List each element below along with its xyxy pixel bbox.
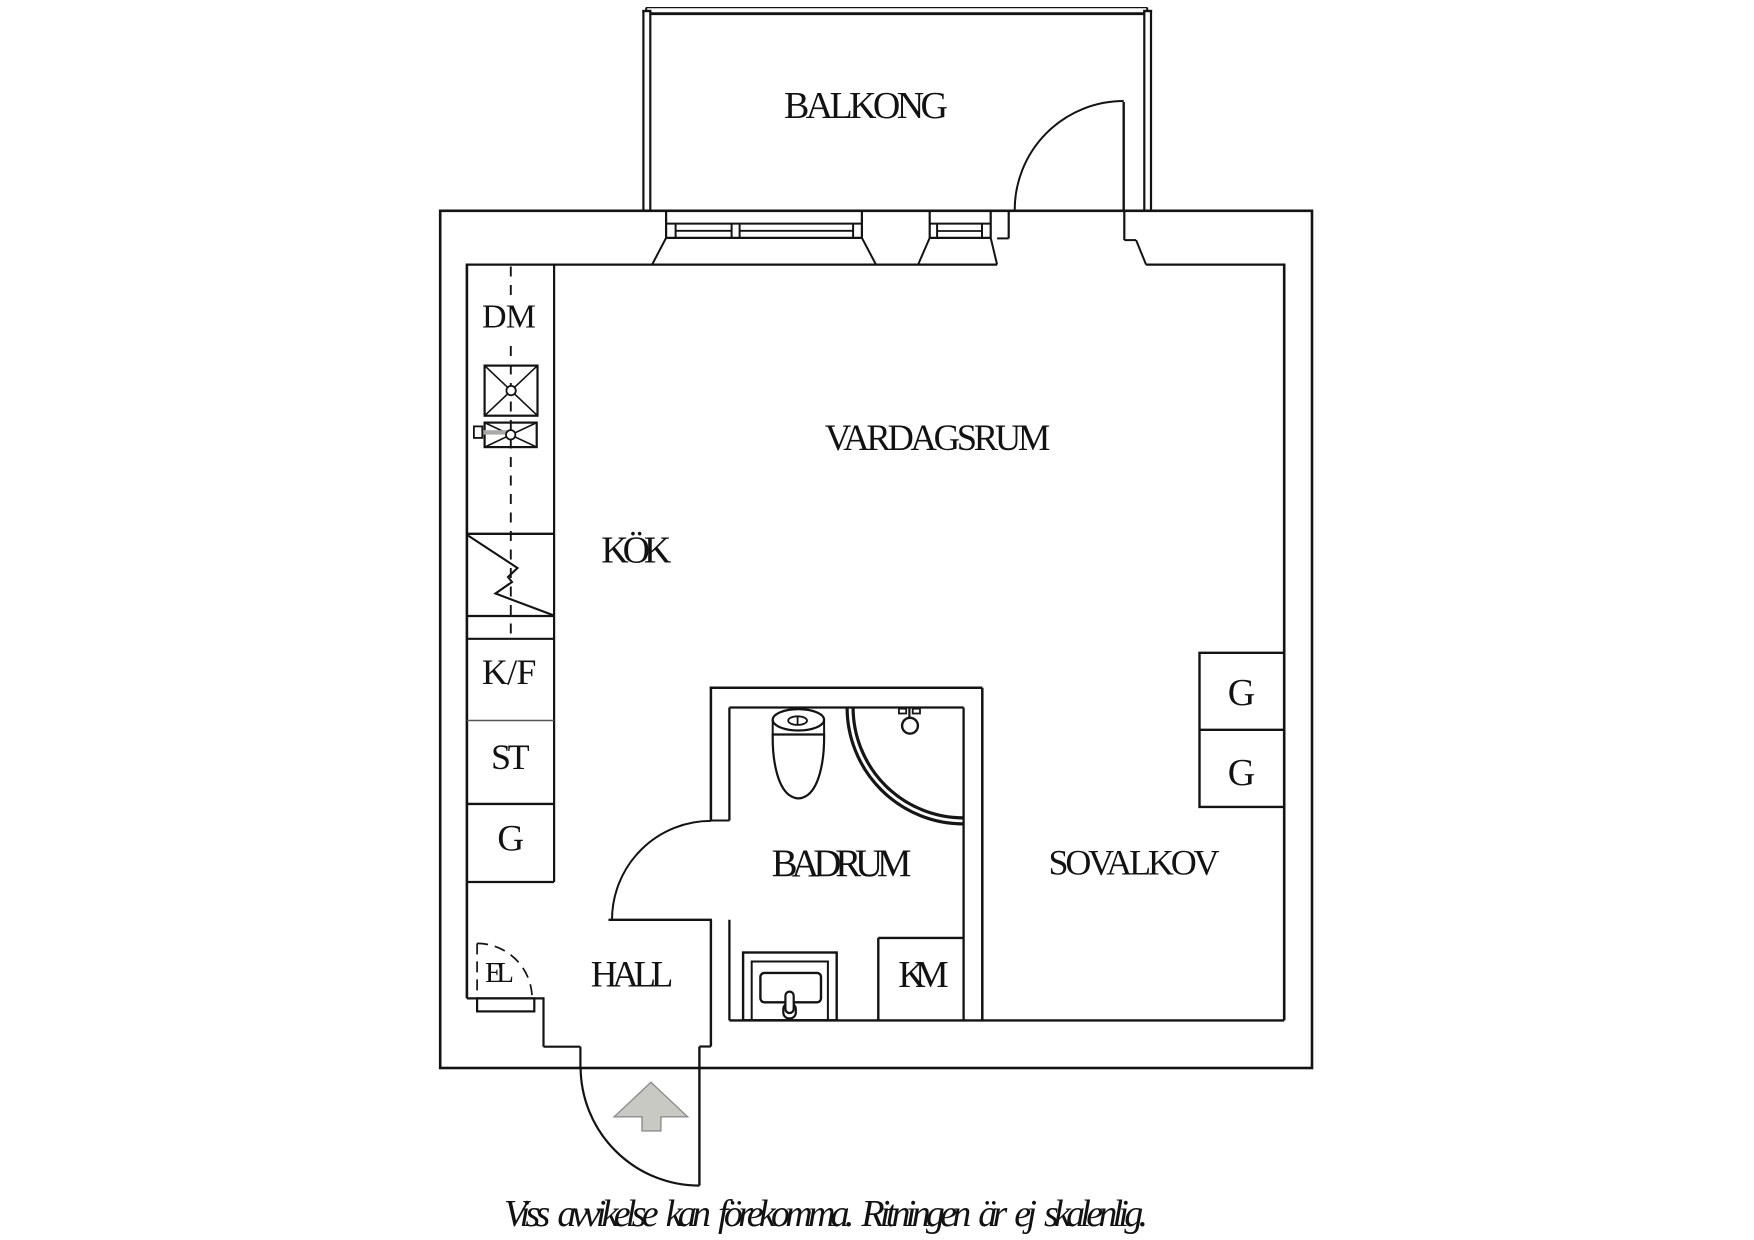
svg-text:G: G	[1228, 672, 1255, 714]
svg-text:K/F: K/F	[482, 652, 537, 692]
svg-text:Viss avvikelse kan förekomma.: Viss avvikelse kan förekomma. Ritningen …	[504, 1193, 1148, 1235]
svg-text:KM: KM	[898, 954, 949, 996]
svg-text:EL: EL	[485, 957, 514, 989]
svg-text:BADRUM: BADRUM	[772, 842, 912, 885]
svg-text:ST: ST	[491, 737, 530, 777]
svg-text:G: G	[497, 819, 524, 860]
svg-text:G: G	[1228, 752, 1255, 794]
svg-text:VARDAGSRUM: VARDAGSRUM	[825, 417, 1051, 458]
svg-text:DM: DM	[482, 298, 536, 335]
svg-text:SOVALKOV: SOVALKOV	[1049, 843, 1220, 883]
svg-text:HALL: HALL	[591, 954, 674, 995]
svg-text:BALKONG: BALKONG	[784, 85, 948, 127]
svg-text:KÖK: KÖK	[601, 529, 672, 571]
